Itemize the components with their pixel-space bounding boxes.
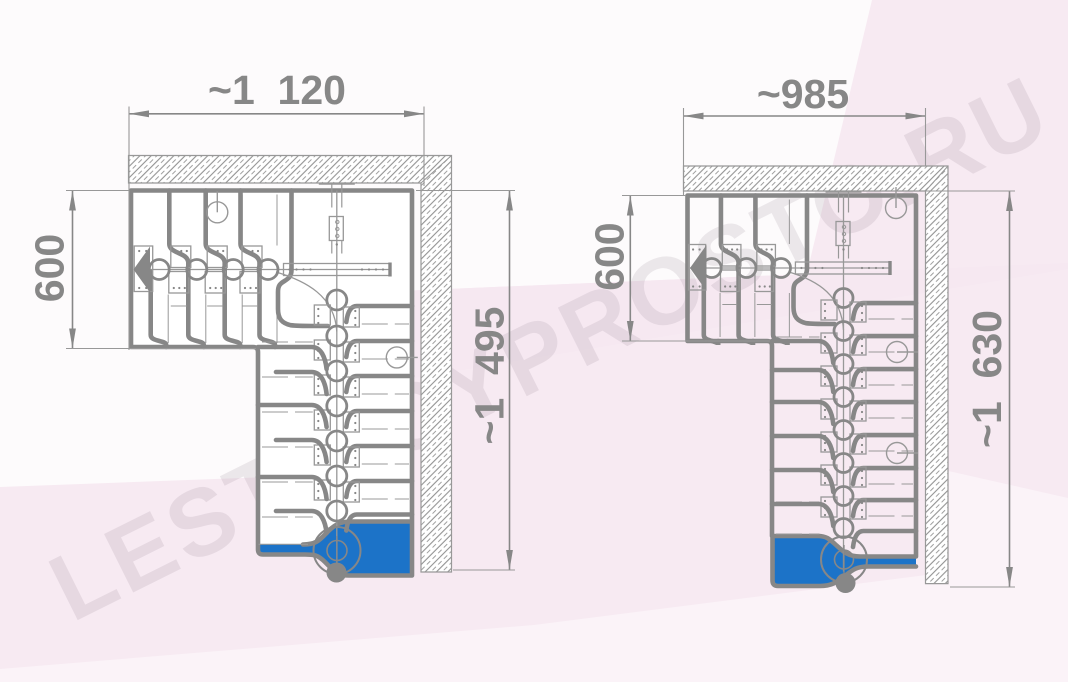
svg-text:~1 495: ~1 495 (467, 307, 513, 445)
svg-text:~985: ~985 (757, 71, 849, 117)
svg-text:600: 600 (587, 222, 633, 290)
svg-text:~1 630: ~1 630 (964, 310, 1010, 448)
svg-text:~1 120: ~1 120 (208, 67, 346, 113)
svg-text:600: 600 (27, 234, 73, 302)
